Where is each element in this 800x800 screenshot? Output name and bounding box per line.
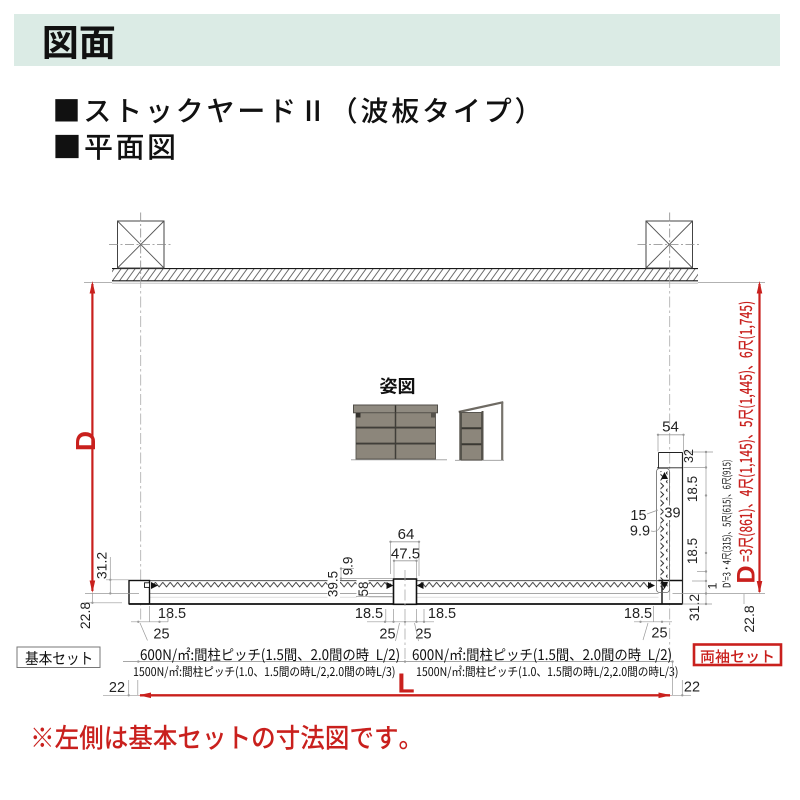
svg-text:18.5: 18.5 — [624, 606, 652, 622]
svg-text:15: 15 — [630, 508, 646, 524]
svg-text:39: 39 — [664, 506, 680, 522]
svg-text:18.5: 18.5 — [355, 606, 383, 622]
svg-text:18.5: 18.5 — [428, 606, 456, 622]
svg-text:31.2: 31.2 — [686, 594, 702, 621]
svg-text:D: D — [70, 431, 101, 451]
svg-text:54: 54 — [662, 419, 679, 436]
svg-text:58: 58 — [356, 581, 371, 596]
svg-text:25: 25 — [415, 627, 431, 643]
svg-text:18.5: 18.5 — [685, 538, 700, 564]
svg-text:31.2: 31.2 — [94, 552, 110, 579]
svg-text:9.9: 9.9 — [341, 557, 356, 576]
svg-text:1: 1 — [706, 582, 720, 589]
svg-text:18.5: 18.5 — [685, 476, 700, 502]
svg-text:64: 64 — [398, 526, 415, 543]
svg-text:25: 25 — [379, 627, 395, 643]
svg-text:D: D — [733, 565, 761, 583]
svg-text:L: L — [397, 668, 414, 699]
svg-text:25: 25 — [651, 626, 667, 642]
svg-text:22.8: 22.8 — [77, 602, 93, 629]
svg-text:22: 22 — [684, 680, 700, 696]
svg-text:39.5: 39.5 — [326, 571, 341, 597]
svg-text:9.9: 9.9 — [630, 524, 650, 540]
svg-text:22: 22 — [109, 680, 125, 696]
svg-text:22.8: 22.8 — [741, 605, 757, 632]
svg-text:32: 32 — [682, 449, 696, 463]
svg-text:25: 25 — [153, 627, 169, 643]
svg-text:18.5: 18.5 — [158, 606, 186, 622]
